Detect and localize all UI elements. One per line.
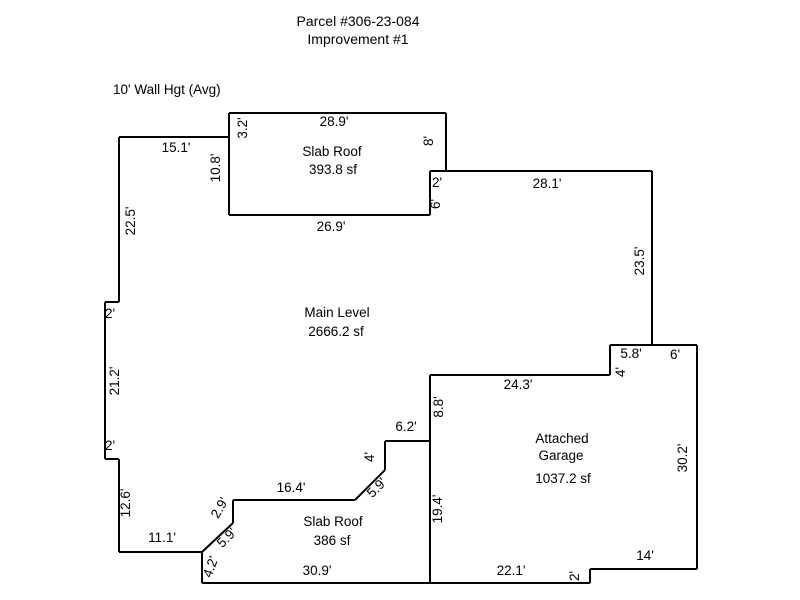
dimension-label: 2': [568, 571, 582, 581]
dimension-label: 6': [429, 199, 443, 209]
dimension-label: 2': [105, 307, 115, 321]
dimension-label: 16.4': [277, 481, 306, 495]
dimension-label: 14': [636, 549, 654, 563]
dimension-label: 15.1': [162, 141, 191, 155]
dimension-label: 6': [670, 348, 680, 362]
dimension-label: 2': [105, 439, 115, 453]
dimension-label: 4': [614, 367, 628, 377]
dimension-label: 5.9': [214, 525, 239, 550]
dimension-label: 19.4': [431, 495, 445, 524]
dimension-label: 28.9': [320, 115, 349, 129]
dimension-label: 8.8': [432, 396, 446, 417]
dimension-label: 28.1': [533, 177, 562, 191]
area-label: 2666.2 sf: [308, 325, 364, 339]
property-sketch: Parcel #306-23-084 Improvement #1 10' Wa…: [0, 0, 800, 600]
dimension-label: 22.5': [124, 207, 138, 236]
dimension-label: 30.9': [303, 564, 332, 578]
dimension-label: 10.8': [209, 154, 223, 183]
dimension-label: 2.9': [209, 495, 232, 520]
dimension-label: 5.8': [620, 347, 641, 361]
dimension-label: 30.2': [676, 444, 690, 473]
area-label: Main Level: [304, 306, 369, 320]
dimension-label: 3.2': [236, 117, 250, 138]
dimension-label: 5.9': [364, 475, 389, 500]
area-label: Slab Roof: [302, 145, 361, 159]
dimension-label: 6.2': [395, 420, 416, 434]
dimension-label: 12.6': [119, 489, 133, 518]
dimension-label: 24.3': [504, 378, 533, 392]
labels-layer: 28.9'3.2'8'15.1'10.8'2'28.1'6'26.9'22.5'…: [0, 0, 800, 600]
area-label: Attached: [535, 432, 588, 446]
dimension-label: 4': [363, 452, 377, 462]
dimension-label: 26.9': [317, 220, 346, 234]
dimension-label: 4.2': [201, 555, 221, 580]
area-label: 1037.2 sf: [535, 472, 591, 486]
area-label: 393.8 sf: [309, 163, 357, 177]
dimension-label: 11.1': [148, 531, 176, 545]
dimension-label: 21.2': [108, 367, 122, 396]
area-label: Garage: [538, 449, 583, 463]
dimension-label: 22.1': [497, 564, 526, 578]
area-label: Slab Roof: [303, 515, 362, 529]
dimension-label: 8': [422, 136, 436, 146]
area-label: 386 sf: [314, 534, 351, 548]
dimension-label: 23.5': [633, 247, 647, 276]
dimension-label: 2': [432, 176, 442, 190]
